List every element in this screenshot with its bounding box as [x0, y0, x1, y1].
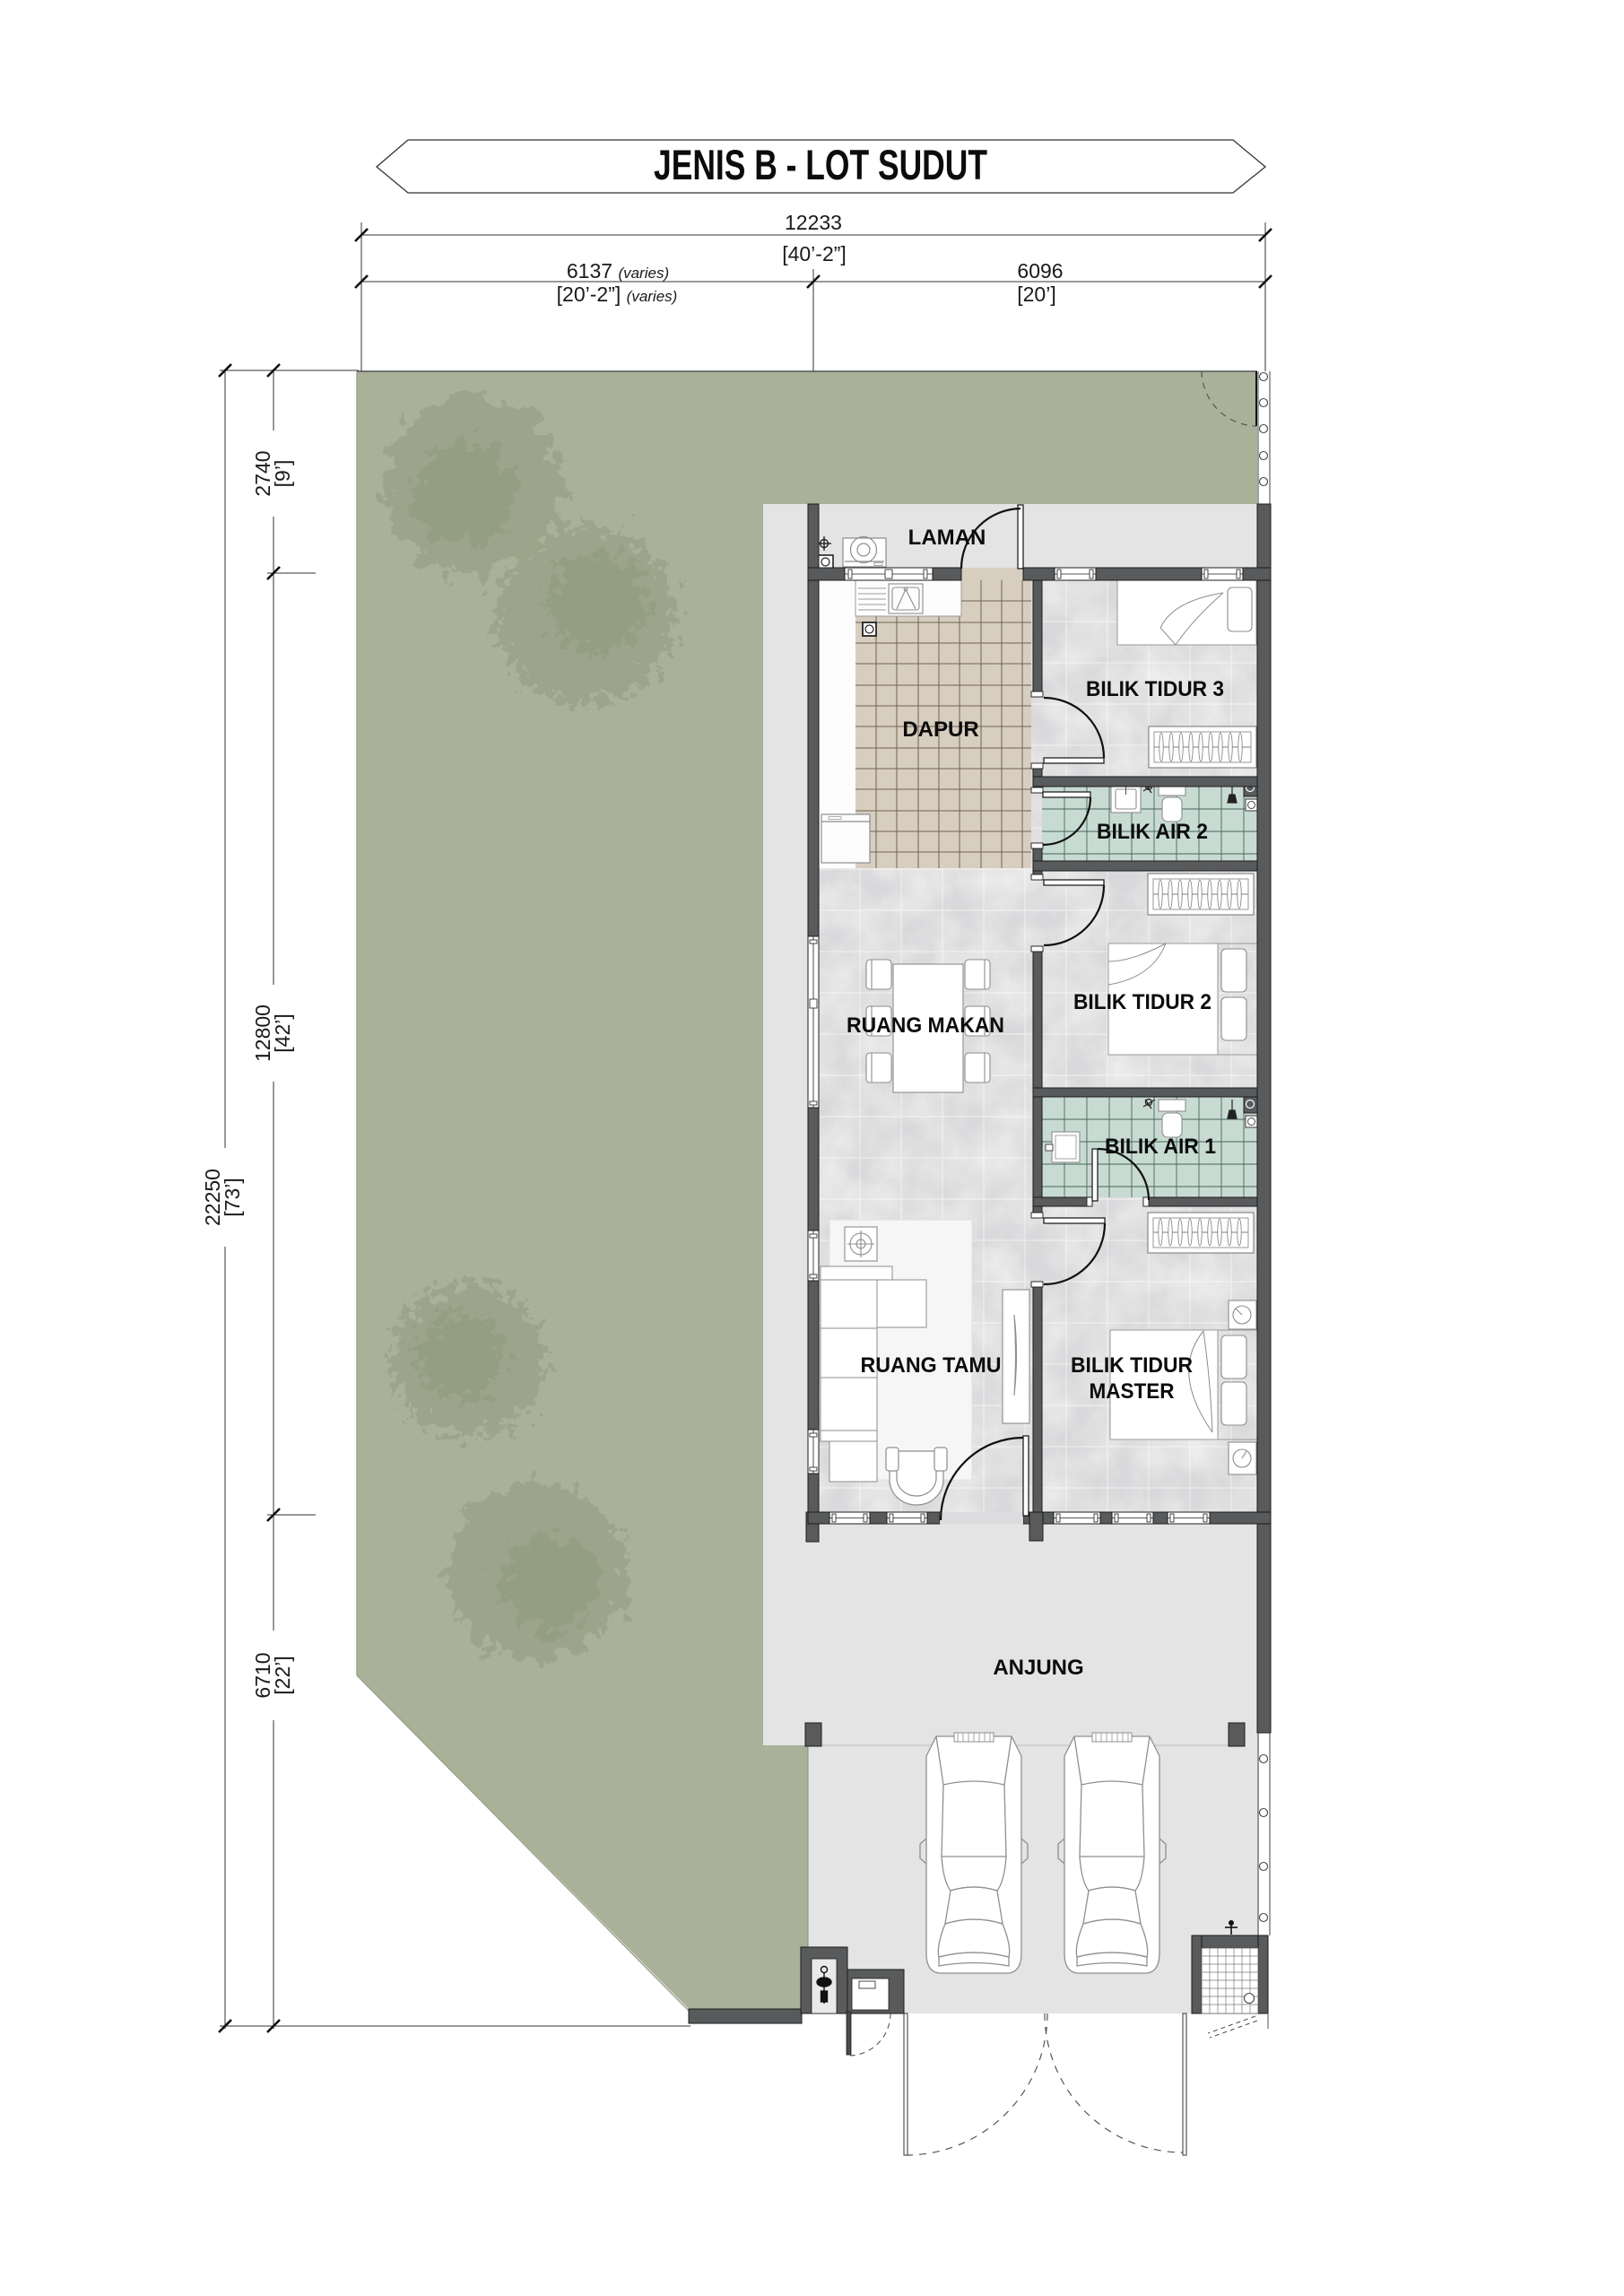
svg-text:MASTER: MASTER [1090, 1379, 1175, 1404]
svg-text:[20’]: [20’] [1017, 283, 1055, 306]
svg-text:6710[22’]: 6710[22’] [251, 1652, 294, 1698]
svg-text:6096: 6096 [1017, 259, 1063, 283]
svg-text:BILIK TIDUR: BILIK TIDUR [1071, 1353, 1193, 1378]
svg-text:RUANG MAKAN: RUANG MAKAN [847, 1013, 1004, 1038]
svg-text:BILIK TIDUR 3: BILIK TIDUR 3 [1086, 677, 1224, 701]
svg-text:JENIS B - LOT SUDUT: JENIS B - LOT SUDUT [654, 141, 987, 188]
svg-text:BILIK TIDUR 2: BILIK TIDUR 2 [1073, 990, 1211, 1014]
svg-text:DAPUR: DAPUR [902, 717, 978, 742]
svg-text:BILIK AIR 2: BILIK AIR 2 [1097, 820, 1208, 844]
svg-text:LAMAN: LAMAN [908, 526, 986, 550]
svg-text:BILIK AIR 1: BILIK AIR 1 [1105, 1135, 1216, 1159]
svg-text:RUANG TAMU: RUANG TAMU [861, 1353, 1002, 1378]
svg-text:ANJUNG: ANJUNG [993, 1656, 1083, 1680]
svg-text:12233: 12233 [785, 211, 842, 234]
svg-text:[40’-2”]: [40’-2”] [782, 242, 847, 265]
